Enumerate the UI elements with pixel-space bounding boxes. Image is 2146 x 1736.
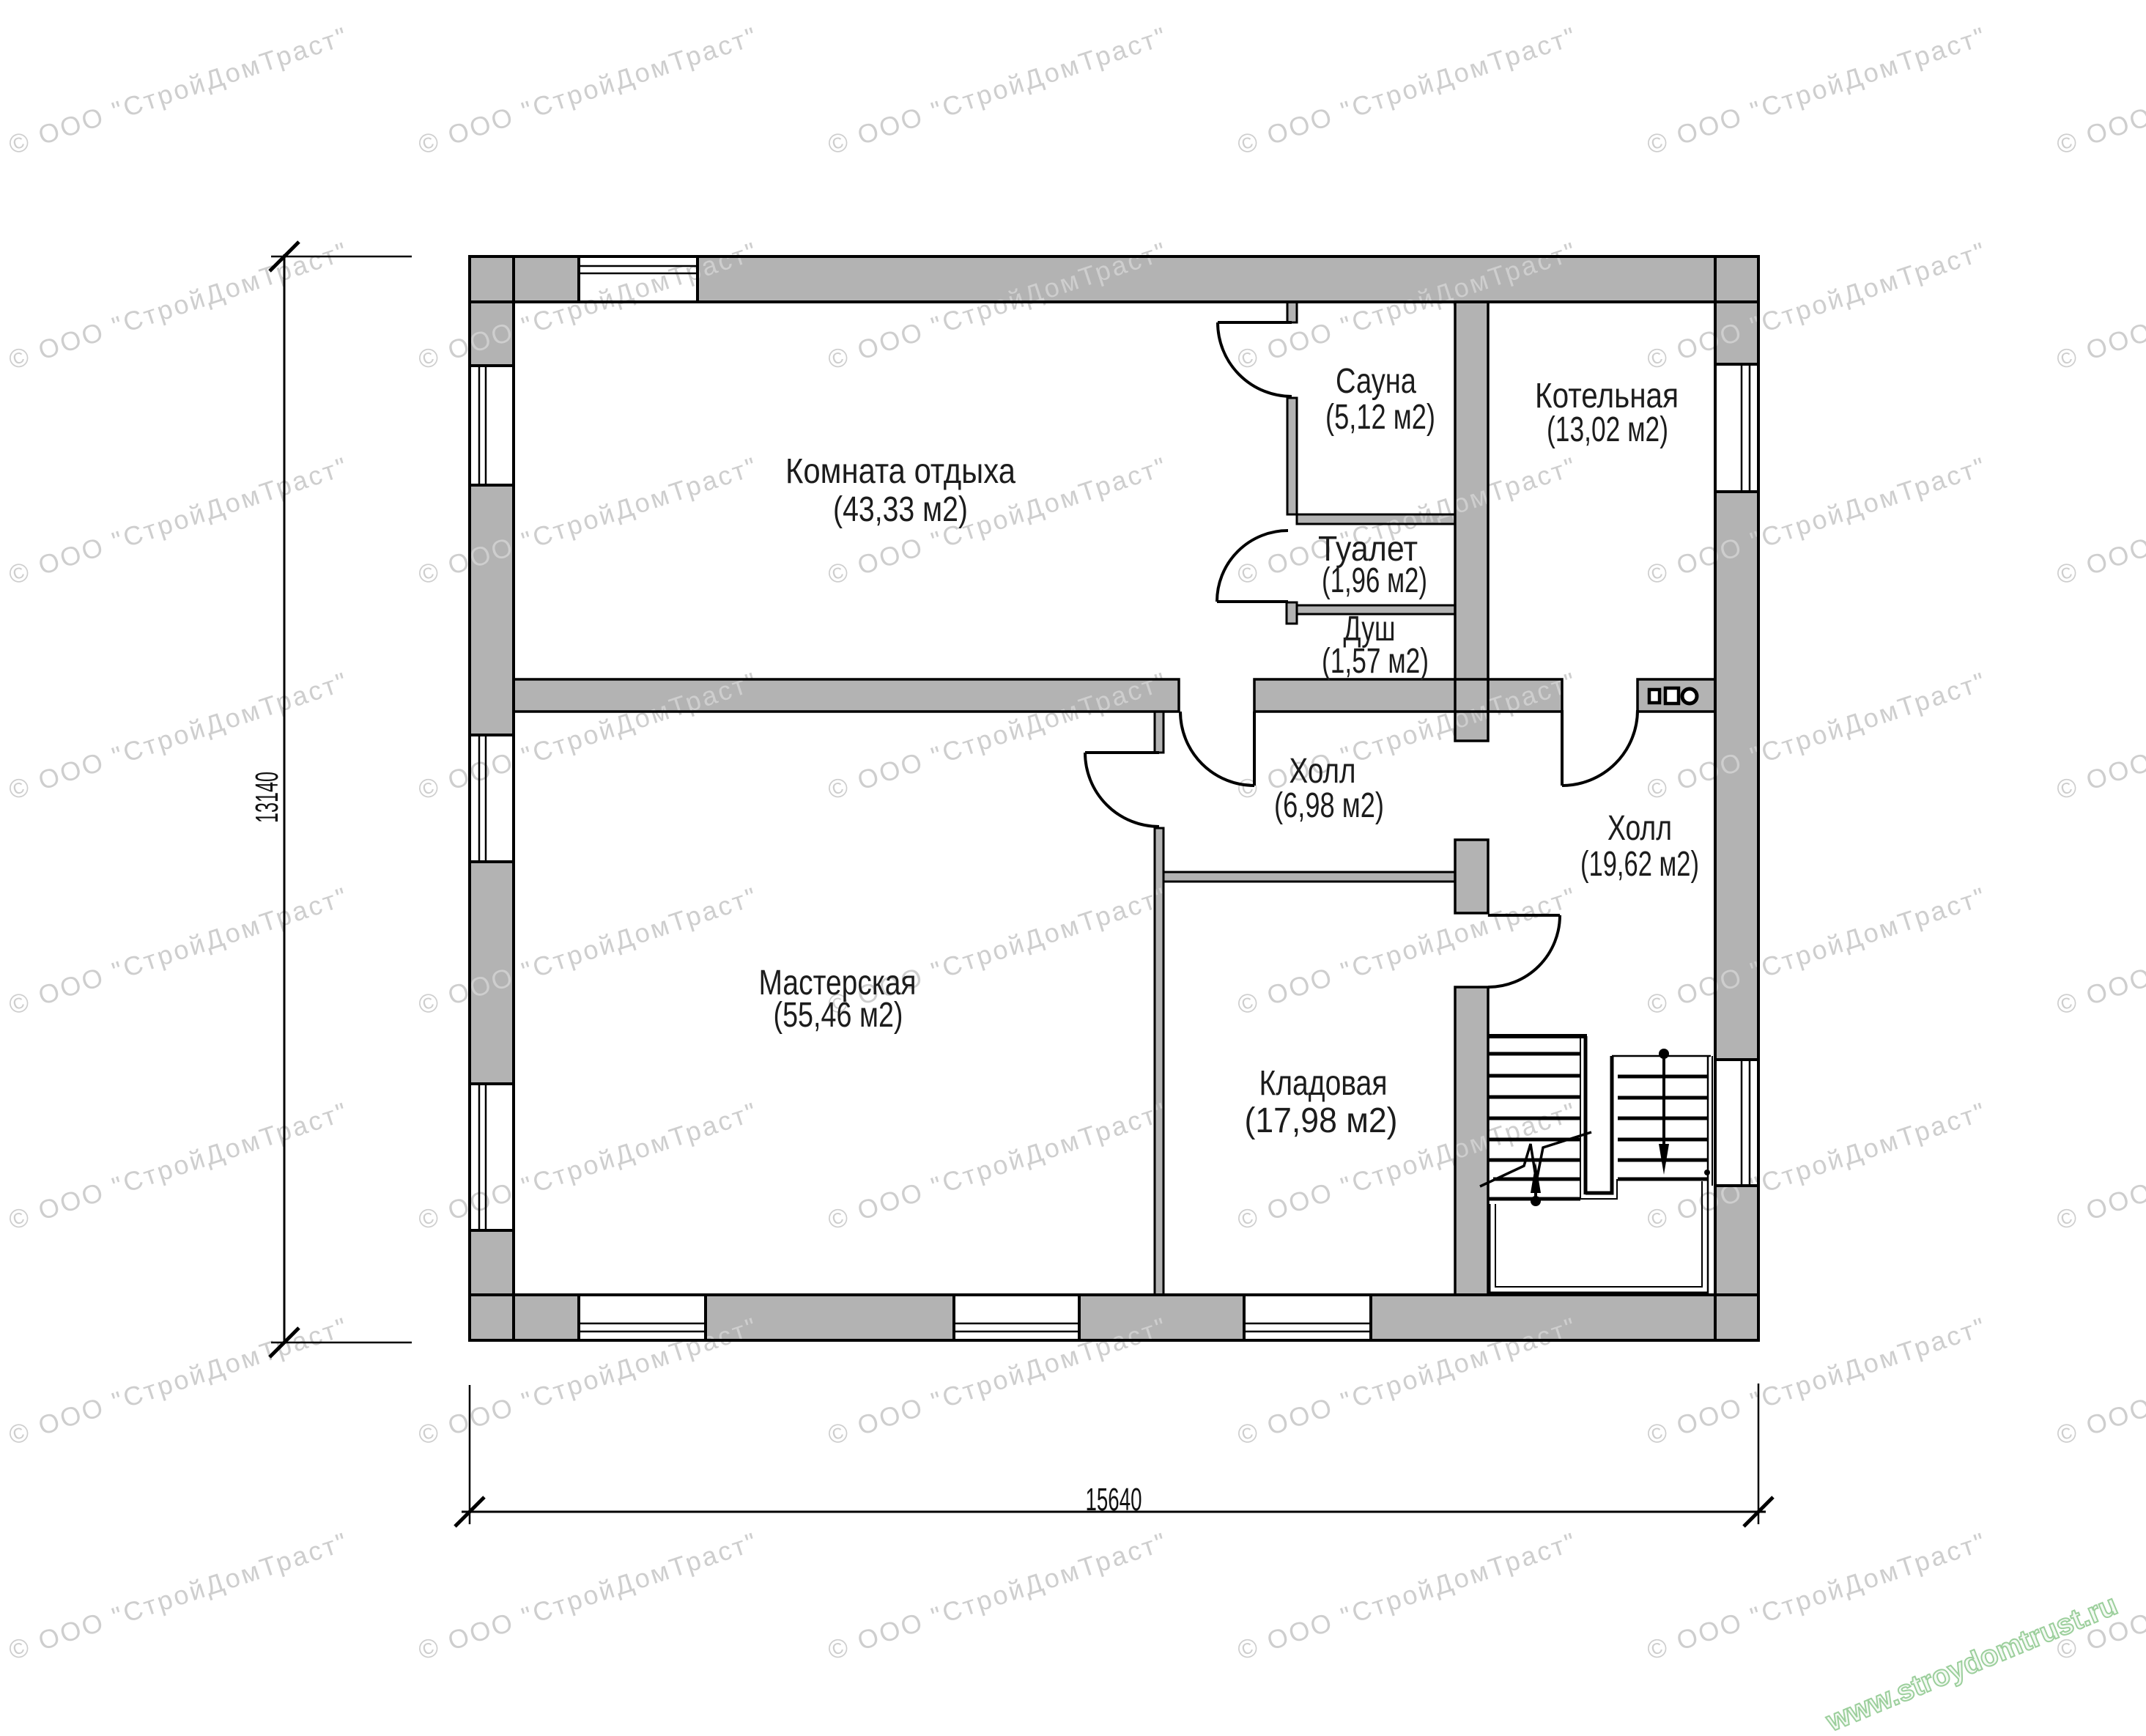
svg-text:Сауна: Сауна <box>1336 362 1416 401</box>
svg-text:(19,62 м2): (19,62 м2) <box>1580 845 1699 884</box>
svg-text:(13,02 м2): (13,02 м2) <box>1547 410 1668 449</box>
svg-text:13140: 13140 <box>249 772 285 823</box>
svg-text:Кладовая: Кладовая <box>1259 1064 1388 1103</box>
svg-text:(5,12 м2): (5,12 м2) <box>1325 398 1435 437</box>
svg-text:Комната отдыха: Комната отдыха <box>785 452 1015 491</box>
svg-text:(43,33 м2): (43,33 м2) <box>833 490 968 529</box>
svg-text:(55,46 м2): (55,46 м2) <box>774 996 903 1035</box>
svg-text:15640: 15640 <box>1086 1482 1142 1518</box>
svg-text:Холл: Холл <box>1290 752 1356 791</box>
svg-text:Холл: Холл <box>1607 809 1672 848</box>
svg-text:(6,98 м2): (6,98 м2) <box>1274 786 1384 825</box>
svg-text:(1,57 м2): (1,57 м2) <box>1322 642 1429 681</box>
svg-text:(1,96 м2): (1,96 м2) <box>1322 561 1427 600</box>
svg-text:(17,98 м2): (17,98 м2) <box>1245 1101 1398 1140</box>
